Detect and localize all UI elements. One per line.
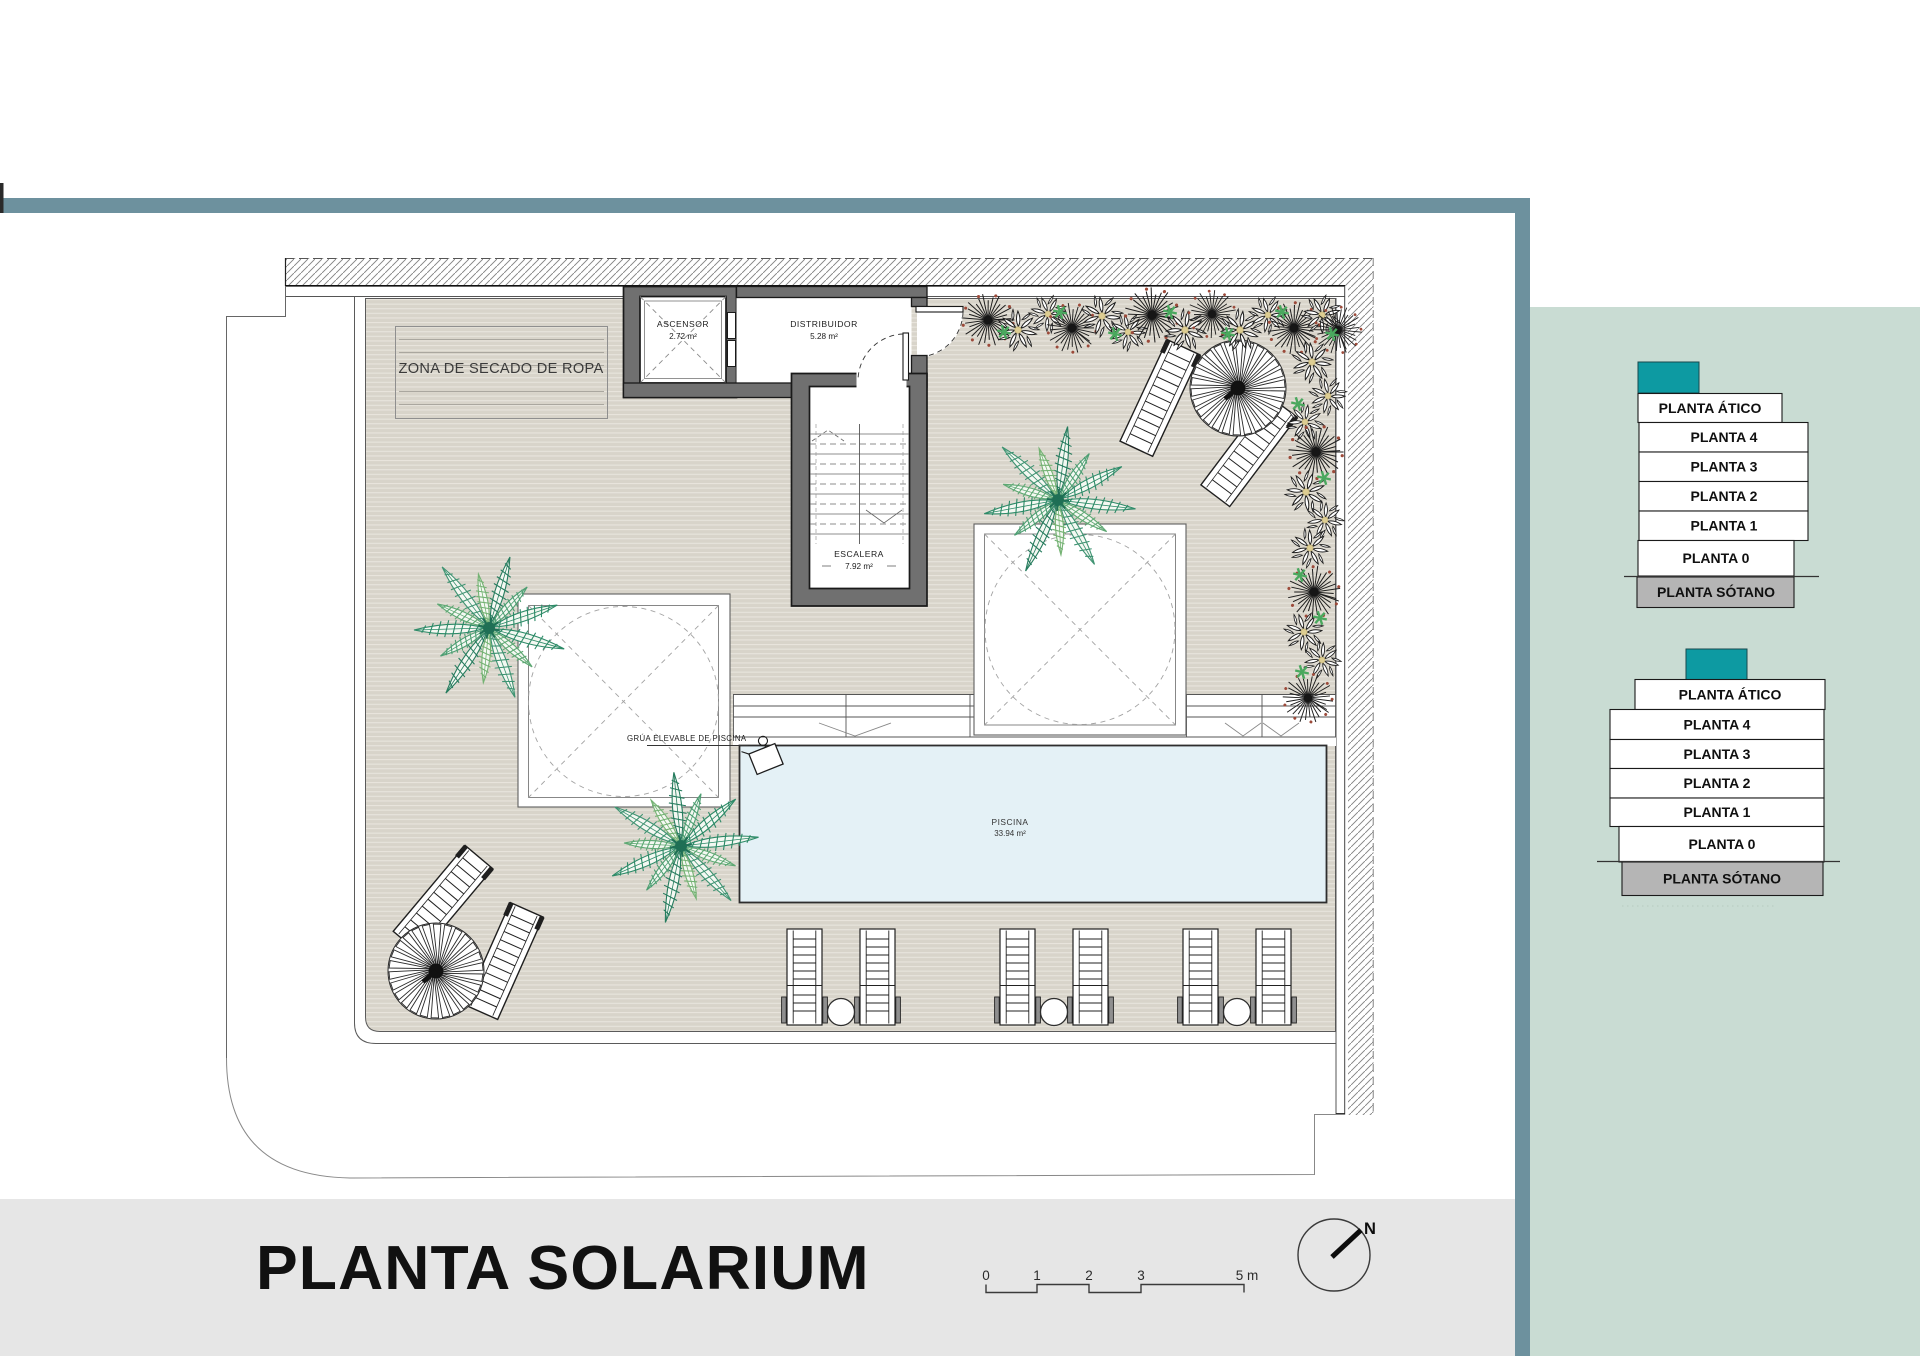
svg-text:5 m: 5 m	[1236, 1268, 1259, 1283]
svg-text:GRÚA ELEVABLE DE PISCINA: GRÚA ELEVABLE DE PISCINA	[627, 734, 747, 743]
svg-text:2.72 m²: 2.72 m²	[669, 332, 697, 341]
svg-text:PLANTA 4: PLANTA 4	[1684, 716, 1751, 732]
svg-text:3: 3	[1137, 1268, 1145, 1283]
svg-text:ASCENSOR: ASCENSOR	[657, 319, 709, 329]
svg-text:2: 2	[1085, 1268, 1093, 1283]
svg-text:PLANTA 3: PLANTA 3	[1691, 459, 1758, 475]
svg-text:ZONA DE SECADO DE ROPA: ZONA DE SECADO DE ROPA	[398, 361, 603, 377]
svg-text:PLANTA 0: PLANTA 0	[1683, 550, 1750, 566]
svg-text:PLANTA 1: PLANTA 1	[1684, 804, 1751, 820]
svg-text:1: 1	[1033, 1268, 1041, 1283]
svg-text:PLANTA 2: PLANTA 2	[1684, 775, 1751, 791]
svg-text:PLANTA ÁTICO: PLANTA ÁTICO	[1659, 400, 1762, 416]
svg-text:N: N	[1364, 1220, 1376, 1238]
svg-text:PLANTA 0: PLANTA 0	[1689, 836, 1756, 852]
svg-text:PLANTA 3: PLANTA 3	[1684, 746, 1751, 762]
svg-text:33.94 m²: 33.94 m²	[994, 829, 1026, 838]
svg-text:PISCINA: PISCINA	[991, 817, 1028, 827]
svg-text:PLANTA SOLARIUM: PLANTA SOLARIUM	[256, 1233, 870, 1303]
svg-text:PLANTA 2: PLANTA 2	[1691, 488, 1758, 504]
svg-text:PLANTA ÁTICO: PLANTA ÁTICO	[1679, 686, 1782, 702]
svg-text:ESCALERA: ESCALERA	[834, 549, 884, 559]
svg-text:PLANTA 4: PLANTA 4	[1691, 429, 1758, 445]
svg-text:DISTRIBUIDOR: DISTRIBUIDOR	[790, 319, 858, 329]
svg-text:0: 0	[982, 1268, 990, 1283]
svg-text:7.92 m²: 7.92 m²	[845, 562, 873, 571]
svg-text:PLANTA 1: PLANTA 1	[1691, 518, 1758, 534]
svg-text:PLANTA SÓTANO: PLANTA SÓTANO	[1663, 870, 1781, 887]
svg-text:5.28 m²: 5.28 m²	[810, 332, 838, 341]
svg-text:PLANTA SÓTANO: PLANTA SÓTANO	[1657, 583, 1775, 600]
